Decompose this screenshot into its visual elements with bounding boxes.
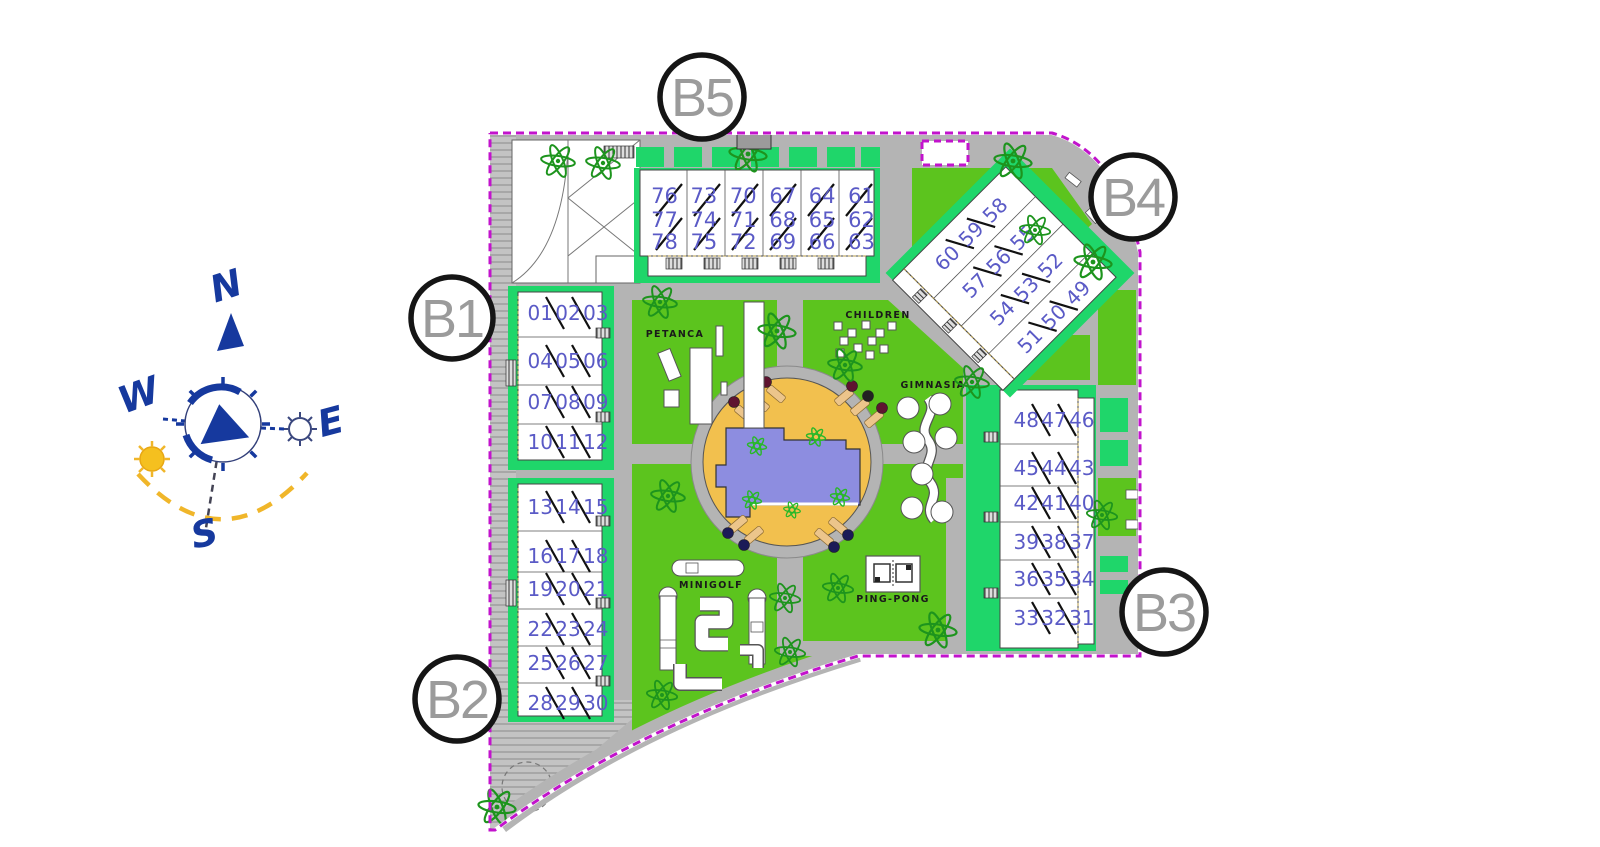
b2-row-4: 22 23 24: [527, 617, 608, 641]
compass-w: W: [112, 367, 167, 422]
pingpong-area: PING-PONG: [856, 556, 930, 605]
b3-row-6: 33 32 31: [1013, 606, 1094, 630]
b1-row-3: 07 08 09: [527, 390, 608, 414]
compass-west-tick-line: [163, 419, 186, 421]
b5-row-2: 77 74 71 68 65 62: [651, 208, 875, 232]
compass-north-arrow: [217, 313, 244, 351]
minigolf-label: MINIGOLF: [679, 580, 743, 591]
bench: [1126, 520, 1138, 529]
b2-row-3: 19 20 21: [527, 577, 608, 601]
b5-row-1: 76 73 70 67 64 61: [651, 184, 875, 208]
compass-rose: N W E S: [112, 261, 348, 558]
site-plan-canvas: 76 73 70 67 64 61 77 74 71 68 65 62 78 7…: [0, 0, 1600, 847]
children-label: CHILDREN: [845, 310, 910, 321]
block-label-b5: B5: [671, 68, 733, 128]
sun-path-arc: [138, 473, 307, 519]
block-marker-b2: B2: [415, 657, 499, 741]
block-label-b1: B1: [421, 289, 483, 349]
b1-row-4: 10 11 12: [527, 430, 608, 454]
bench: [1126, 490, 1138, 499]
utility-stairs: [604, 146, 634, 158]
compass-east-tick-line: [261, 428, 284, 429]
compass-n: N: [205, 261, 248, 311]
compass-e: E: [313, 398, 349, 446]
east-lawn-upper: [1098, 290, 1136, 385]
block-marker-b4: B4: [1091, 155, 1175, 239]
block-marker-b5: B5: [660, 55, 744, 139]
sun-icon-west: [140, 447, 164, 471]
block-marker-b1: B1: [411, 277, 493, 359]
block-label-b2: B2: [426, 670, 488, 730]
pingpong-label: PING-PONG: [856, 594, 930, 605]
block-label-b3: B3: [1133, 583, 1195, 643]
b2-row-5: 25 26 27: [527, 651, 608, 675]
b3-row-4: 39 38 37: [1013, 530, 1094, 554]
b2-row-6: 28 29 30: [527, 691, 608, 715]
b2-row-2: 16 17 18: [527, 544, 608, 568]
b2-row-1: 13 14 15: [527, 495, 608, 519]
block-marker-b3: B3: [1122, 570, 1206, 654]
b3-row-2: 45 44 43: [1013, 456, 1094, 480]
entrance-structure: [737, 134, 771, 149]
b3-row-3: 42 41 40: [1013, 491, 1094, 515]
b5-row-3: 78 75 72 69 66 63: [651, 230, 875, 254]
building-b1-group: 01 02 03 04 05 06 07 08 09 10 11 12: [506, 292, 610, 460]
b1-row-1: 01 02 03: [527, 301, 608, 325]
building-b5-group: 76 73 70 67 64 61 77 74 71 68 65 62 78 7…: [640, 170, 875, 276]
building-b2-group: 13 14 15 16 17 18 19 20 21 22 23 24 25 2…: [506, 484, 610, 719]
petanca-label: PETANCA: [646, 329, 705, 340]
sun-icon-east: [289, 418, 311, 440]
boundary-notch: [922, 141, 968, 165]
block-label-b4: B4: [1102, 168, 1165, 228]
b3-row-1: 48 47 46: [1013, 408, 1094, 432]
b1-row-2: 04 05 06: [527, 349, 608, 373]
building-b3-group: 48 47 46 45 44 43 42 41 40 39 38 37 36 3…: [984, 390, 1095, 648]
b3-row-5: 36 35 34: [1013, 567, 1094, 591]
